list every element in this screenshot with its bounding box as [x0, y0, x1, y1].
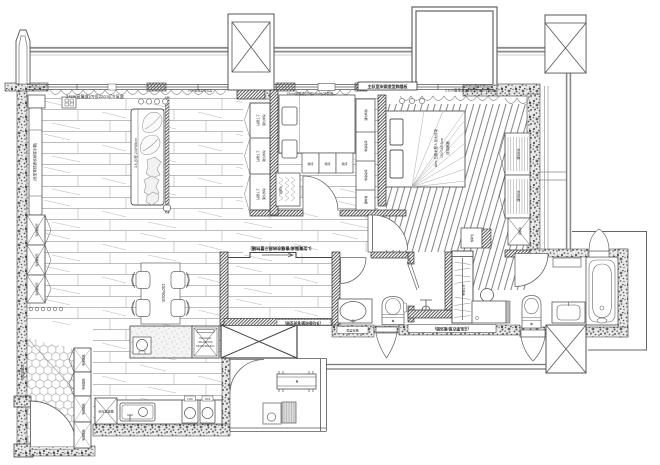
svg-text:(玄關落塵區): (玄關落塵區) — [21, 364, 26, 381]
svg-text:設備收納櫃: 設備收納櫃 — [35, 254, 39, 267]
svg-text:鞋櫃收納: 鞋櫃收納 — [82, 429, 86, 440]
svg-text:鞋櫃收納: 鞋櫃收納 — [82, 403, 86, 414]
svg-text:15cm窗簾盒(內徑13cm)/冷氣盒: 15cm窗簾盒(內徑13cm)/冷氣盒 — [287, 91, 335, 96]
svg-text:(多功能和室/客房空間): (多功能和室/客房空間) — [284, 321, 321, 326]
svg-text:鞋櫃收納: 鞋櫃收納 — [82, 354, 86, 365]
svg-text:(造型電視牆收納展示櫃): (造型電視牆收納展示櫃) — [32, 143, 37, 181]
svg-text:床頭飾牆: 床頭飾牆 — [445, 141, 450, 155]
svg-text:F1b6: F1b6 — [187, 398, 193, 401]
svg-text:主臥室床頭造型飾牆板: 主臥室床頭造型飾牆板 — [368, 83, 409, 89]
svg-text:21cm窗簾盒(內徑19cm)/冷氣盒: 21cm窗簾盒(內徑19cm)/冷氣盒 — [445, 88, 495, 93]
svg-text:(L型電腦桌/書櫃收納展示置物櫃): (L型電腦桌/書櫃收納展示置物櫃) — [250, 245, 312, 252]
svg-text:上下開門: 上下開門 — [256, 150, 261, 162]
svg-text:收納吊櫃: 收納吊櫃 — [262, 150, 267, 162]
svg-text:收納吊櫃: 收納吊櫃 — [364, 109, 368, 120]
svg-text:吊掛衣櫃: 吊掛衣櫃 — [517, 190, 521, 201]
svg-text:衣物收納: 衣物收納 — [364, 169, 368, 180]
svg-text:收納櫃: 收納櫃 — [518, 227, 522, 235]
svg-text:廚房電器櫃: 廚房電器櫃 — [98, 409, 113, 414]
svg-text:190*195.5cm: 190*195.5cm — [440, 138, 444, 158]
svg-text:吊掛衣櫃: 吊掛衣櫃 — [517, 148, 521, 159]
svg-text:吊衣桿: 吊衣桿 — [279, 186, 283, 194]
svg-text:收納吊櫃: 收納吊櫃 — [262, 188, 267, 200]
svg-text:掀床: 掀床 — [341, 161, 347, 166]
svg-text:掀床: 掀床 — [307, 161, 313, 166]
svg-text:24cm窗簾盒(內徑22cm)/冷氣盒: 24cm窗簾盒(內徑22cm)/冷氣盒 — [66, 93, 125, 100]
svg-text:NR-F607HX: NR-F607HX — [198, 340, 212, 344]
svg-text:面盆浴櫃: 面盆浴櫃 — [346, 328, 358, 333]
svg-text:上下開門: 上下開門 — [256, 114, 261, 126]
svg-text:24cm窗簾盒/冷氣盒: 24cm窗簾盒/冷氣盒 — [188, 89, 213, 93]
svg-text:收納櫃: 收納櫃 — [364, 196, 368, 205]
svg-text:3人沙發 240*85cm: 3人沙發 240*85cm — [133, 138, 138, 168]
svg-text:鞋櫃收納: 鞋櫃收納 — [82, 378, 86, 389]
svg-text:收納吊櫃: 收納吊櫃 — [262, 114, 267, 126]
svg-text:設備收納櫃: 設備收納櫃 — [35, 224, 39, 237]
svg-text:60x65x182.8cm: 60x65x182.8cm — [196, 344, 214, 348]
svg-text:Alex 白橡木雙人加大床架: Alex 白橡木雙人加大床架 — [433, 128, 438, 167]
svg-text:上下開門: 上下開門 — [256, 188, 261, 200]
svg-text:Panasonic: Panasonic — [199, 336, 212, 340]
svg-text:掀床: 掀床 — [324, 161, 330, 166]
svg-text:(主臥更衣室/衛浴間): (主臥更衣室/衛浴間) — [434, 327, 469, 332]
svg-text:吊衣桿: 吊衣桿 — [470, 234, 474, 243]
svg-text:衣物收納: 衣物收納 — [364, 140, 368, 151]
svg-text:F1b6: F1b6 — [205, 398, 211, 401]
svg-text:150*90cm: 150*90cm — [161, 284, 166, 303]
svg-text:設備收納櫃: 設備收納櫃 — [35, 283, 39, 296]
svg-text:浴巾收納: 浴巾收納 — [462, 284, 466, 295]
